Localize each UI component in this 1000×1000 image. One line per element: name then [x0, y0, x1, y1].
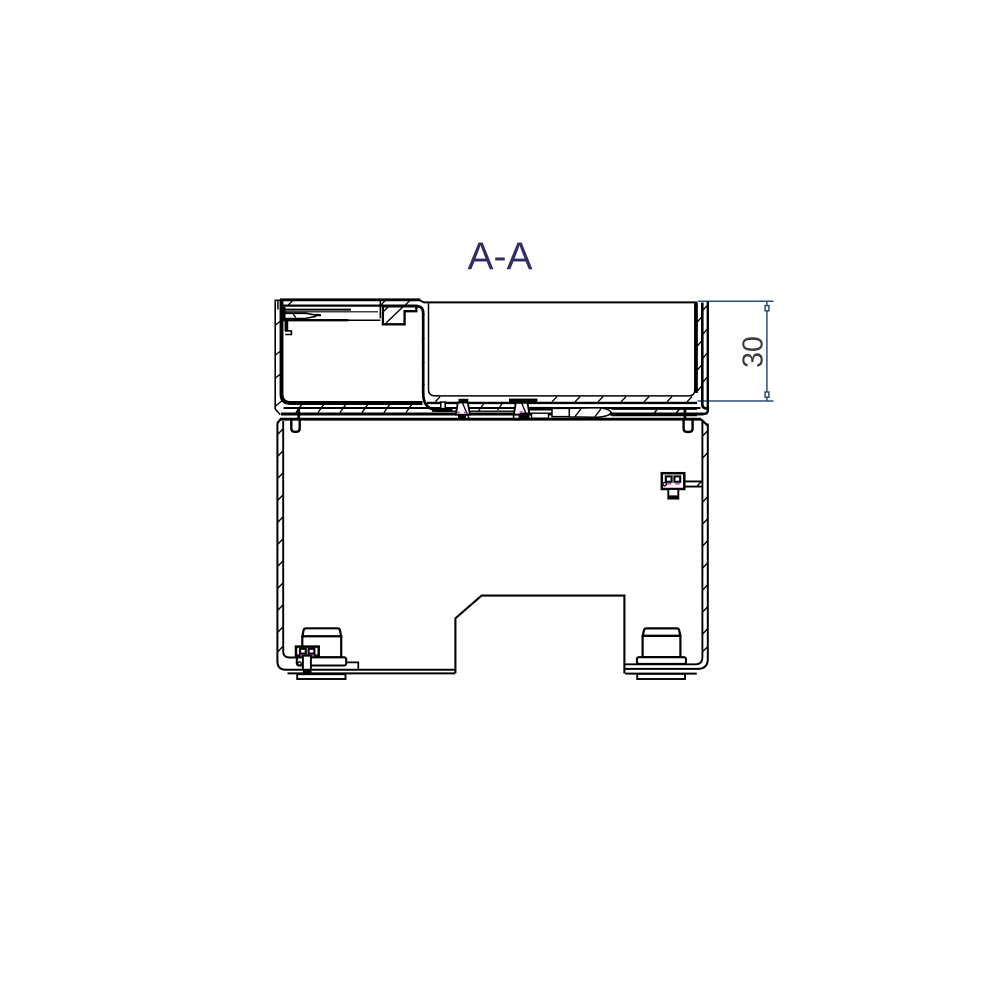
svg-text:30: 30 [738, 336, 770, 368]
svg-text:A-A: A-A [467, 236, 532, 279]
